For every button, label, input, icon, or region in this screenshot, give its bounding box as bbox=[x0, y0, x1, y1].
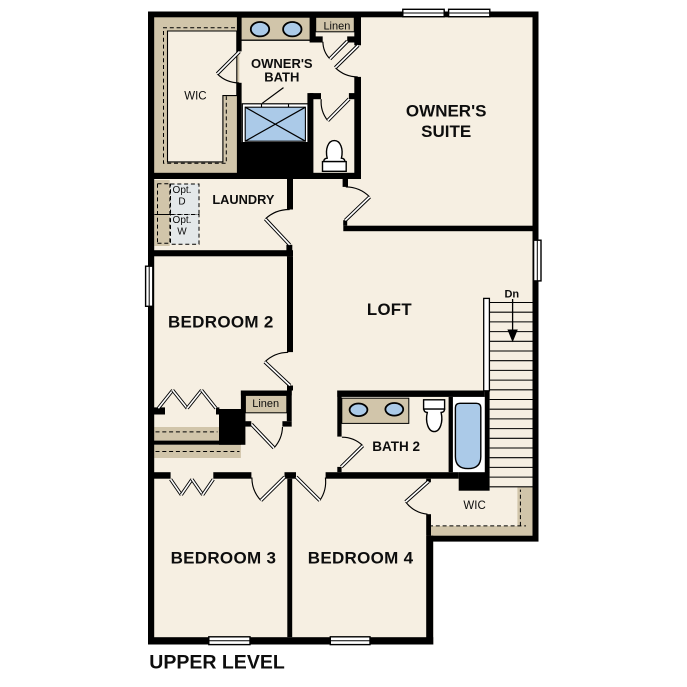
svg-text:Opt.: Opt. bbox=[173, 215, 192, 226]
svg-text:Linen: Linen bbox=[323, 20, 350, 32]
svg-text:Linen: Linen bbox=[252, 398, 279, 410]
svg-text:Opt.: Opt. bbox=[173, 185, 192, 196]
svg-text:LOFT: LOFT bbox=[367, 300, 412, 319]
svg-text:SUITE: SUITE bbox=[421, 122, 471, 141]
svg-text:Dn: Dn bbox=[504, 288, 519, 300]
svg-text:WIC: WIC bbox=[463, 500, 485, 512]
svg-text:OWNER'S: OWNER'S bbox=[406, 102, 487, 121]
svg-text:D: D bbox=[178, 196, 185, 207]
svg-text:BATH 2: BATH 2 bbox=[372, 439, 420, 454]
svg-text:BEDROOM 2: BEDROOM 2 bbox=[168, 313, 274, 332]
svg-text:UPPER LEVEL: UPPER LEVEL bbox=[149, 652, 285, 674]
svg-text:LAUNDRY: LAUNDRY bbox=[212, 192, 275, 207]
svg-text:BEDROOM 3: BEDROOM 3 bbox=[171, 548, 277, 567]
svg-text:BATH: BATH bbox=[264, 70, 299, 85]
svg-text:BEDROOM 4: BEDROOM 4 bbox=[308, 548, 414, 567]
svg-text:W: W bbox=[177, 227, 187, 238]
svg-text:WIC: WIC bbox=[184, 90, 206, 102]
